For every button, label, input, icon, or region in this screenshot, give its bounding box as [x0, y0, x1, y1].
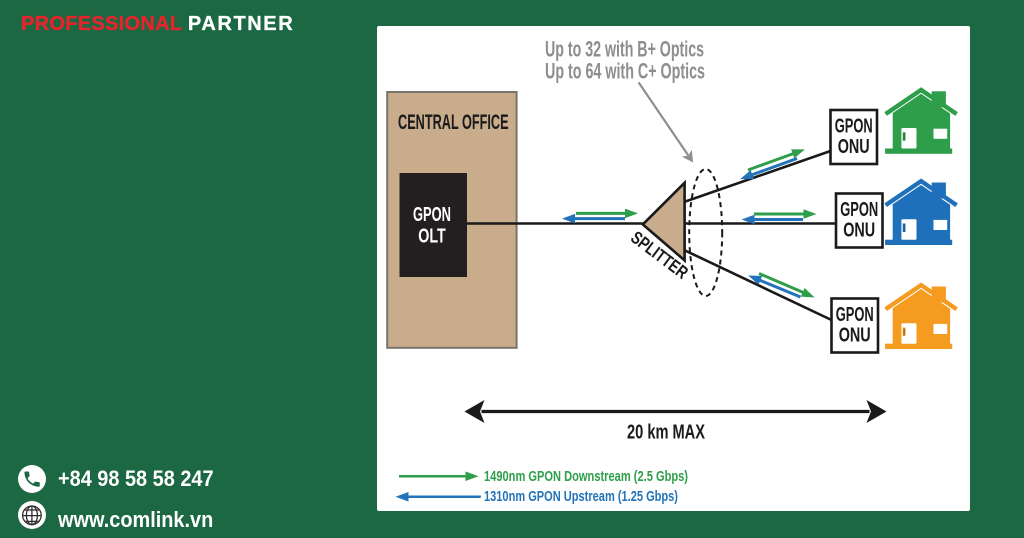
svg-text:20 km MAX: 20 km MAX	[627, 422, 705, 444]
svg-text:1490nm GPON Downstream (2.5 Gb: 1490nm GPON Downstream (2.5 Gbps)	[484, 469, 688, 485]
svg-text:Up to 64 with C+ Optics: Up to 64 with C+ Optics	[545, 59, 705, 84]
svg-text:ONU: ONU	[838, 136, 870, 158]
svg-text:CENTRAL OFFICE: CENTRAL OFFICE	[398, 111, 509, 134]
svg-text:GPON: GPON	[840, 199, 878, 221]
svg-text:1310nm GPON Upstream (1.25 Gbp: 1310nm GPON Upstream (1.25 Gbps)	[484, 489, 678, 505]
svg-text:GPON: GPON	[836, 304, 874, 326]
svg-text:ONU: ONU	[839, 324, 871, 346]
svg-text:GPON: GPON	[835, 116, 873, 138]
svg-text:GPON: GPON	[413, 204, 451, 226]
svg-text:ONU: ONU	[843, 219, 875, 241]
svg-text:OLT: OLT	[418, 226, 446, 248]
